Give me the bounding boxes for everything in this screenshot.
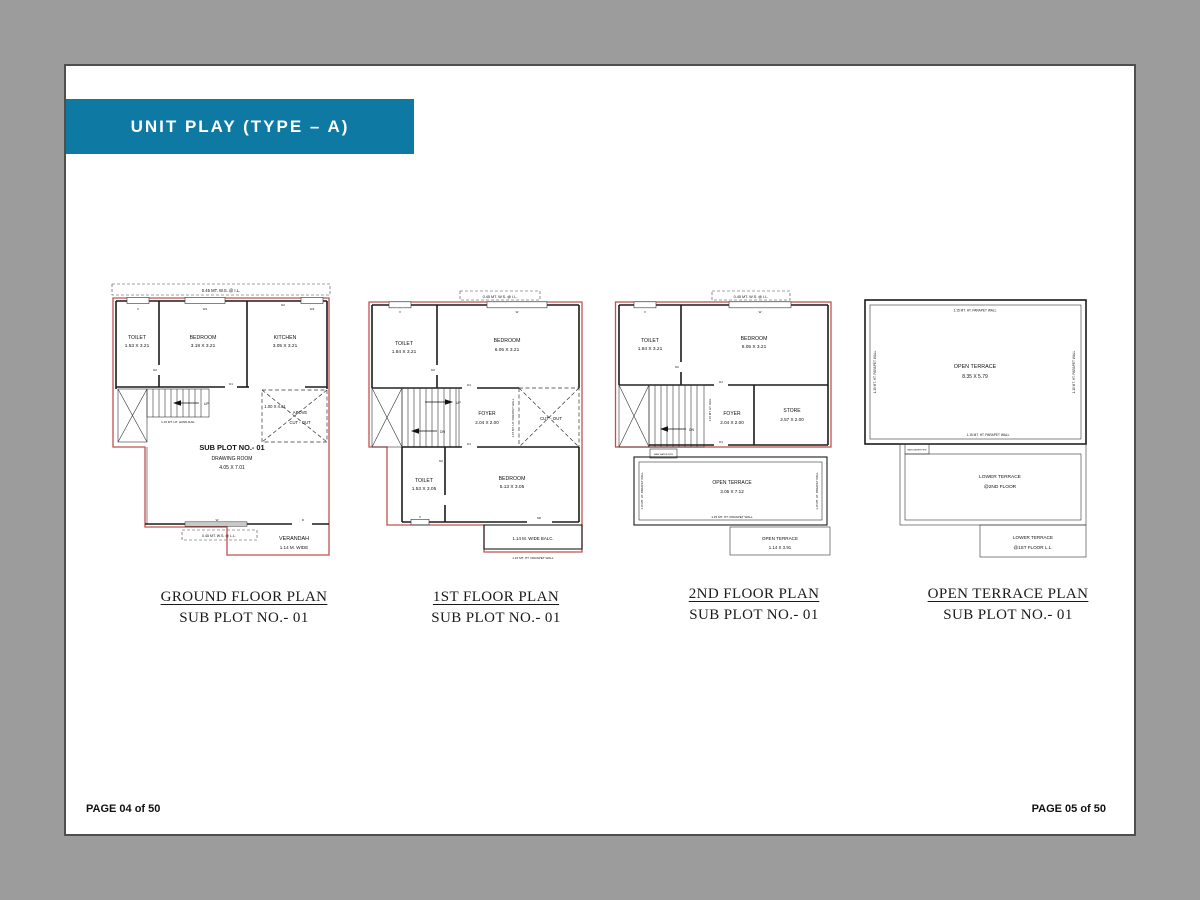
lower1-sub: @2ND FLOOR: [984, 484, 1017, 490]
subtitle-line: SUB PLOT NO.- 01: [888, 607, 1128, 624]
first-floor-drawing: 0.45 MT. W.S. @ I.L. V W D2 D1: [367, 290, 592, 562]
svg-text:3.05 X 3.21: 3.05 X 3.21: [273, 343, 298, 349]
lower-terrace-1st: LOWER TERRACE @1ST FLOOR L.L.: [980, 525, 1086, 557]
title-line: OPEN TERRACE PLAN: [888, 586, 1128, 603]
svg-text:BEDROOM: BEDROOM: [190, 335, 217, 341]
svg-text:1.53 X 3.21: 1.53 X 3.21: [125, 343, 150, 349]
parapet-bottom-label: 1.15 MT. HT. PARAPET WALL: [512, 556, 554, 560]
terrace2-label: OPEN TERRACE: [762, 536, 798, 541]
canvas: { "colors": { "canvas_bg": "#9c9c9c", "p…: [0, 0, 1200, 900]
svg-text:V: V: [137, 307, 139, 311]
staircase: UP DN: [372, 388, 461, 447]
door-window-tags: V W D2 D1 D1: [644, 310, 762, 444]
second-floor-plan: 0.45 MT. W.S. @ I.L. V W D2 D1: [614, 290, 844, 564]
lower-terrace-2nd: LOWER TERRACE @2ND FLOOR: [900, 444, 1086, 525]
second-floor-title: 2ND FLOOR PLAN SUB PLOT NO.- 01: [634, 586, 874, 624]
svg-text:D2: D2: [431, 368, 435, 372]
sill-label: 0.45 MT. W.S. @ I.L.: [202, 288, 240, 293]
parapet-bottom-label: 1.15 MT. HT. PARAPET WALL: [967, 433, 1010, 437]
svg-text:D2: D2: [153, 368, 157, 372]
parapet-right-label: 1.15 MT. HT. PARAPET WALL: [815, 472, 819, 510]
cutout-dim: 1.00 X 4.61: [264, 404, 286, 409]
cutout: CUT - OUT: [519, 388, 579, 447]
bottom-wall: [145, 522, 329, 527]
parapet-right-label: 1.15 MT. HT. PARAPET WALL: [1072, 350, 1076, 393]
room-labels-upper: TOILET 1.84 X 3.21 BEDROOM 6.05 X 3.21: [638, 336, 768, 352]
svg-text:TOILET: TOILET: [128, 335, 147, 341]
balcony: 1.14 M. WIDE BALC.: [484, 525, 582, 549]
svg-text:D: D: [302, 518, 305, 522]
document-page: UNIT PLAY (TYPE – A) 0.45 MT. W.S. @ I.L…: [64, 64, 1136, 836]
page-title: UNIT PLAY (TYPE – A): [131, 117, 350, 137]
drawing-room-labels: SUB PLOT NO.- 01 DRAWING ROOM 4.05 X 7.0…: [199, 443, 264, 471]
svg-text:W1: W1: [203, 307, 208, 311]
up-arrow: [425, 399, 453, 404]
ground-floor-title: GROUND FLOOR PLAN SUB PLOT NO.- 01: [124, 589, 364, 627]
svg-text:1.84 X 3.21: 1.84 X 3.21: [638, 346, 663, 352]
foyer-labels: FOYER 2.04 X 2.00: [475, 411, 499, 425]
title-line: 2ND FLOOR PLAN: [634, 586, 874, 603]
lower1-label: LOWER TERRACE: [979, 474, 1021, 480]
balcony-label: 1.14 M. WIDE BALC.: [512, 536, 553, 541]
sill-bottom-label: 0.45 MT. W.S. @ L.L.: [202, 534, 236, 538]
svg-text:FOYER: FOYER: [723, 411, 741, 417]
svg-text:RAIN WATER PIPE: RAIN WATER PIPE: [907, 449, 927, 452]
first-floor-title: 1ST FLOOR PLAN SUB PLOT NO.- 01: [376, 589, 616, 627]
svg-text:5.13 X 3.05: 5.13 X 3.05: [500, 484, 525, 490]
svg-text:D2: D2: [439, 459, 443, 463]
terrace-label: OPEN TERRACE: [712, 480, 752, 486]
dn-label: DN: [440, 430, 445, 434]
title-line: 1ST FLOOR PLAN: [376, 589, 616, 606]
svg-text:D1: D1: [467, 383, 471, 387]
svg-text:VERANDAH: VERANDAH: [279, 536, 309, 542]
svg-text:D1: D1: [719, 440, 723, 444]
terrace2-dim: 1.14 X 3.91: [769, 545, 792, 550]
terrace-labels: OPEN TERRACE 8.35 X 5.79: [954, 364, 997, 380]
terrace-dim: 3.05 X 7.12: [720, 489, 744, 494]
svg-text:D2: D2: [675, 365, 679, 369]
verandah-labels: VERANDAH 1.14 M. WIDE: [279, 536, 309, 550]
parapet-mid-label: 1.15 MT. HT. PARAPET WALL: [511, 398, 515, 437]
svg-text:FOYER: FOYER: [478, 411, 496, 417]
subtitle-line: SUB PLOT NO.- 01: [634, 607, 874, 624]
walls-lower: [402, 447, 579, 525]
svg-text:6.05 X 3.21: 6.05 X 3.21: [742, 344, 767, 350]
up-label: UP: [204, 402, 209, 406]
svg-text:6.05 X 3.21: 6.05 X 3.21: [495, 347, 520, 353]
open-terrace-mid: OPEN TERRACE 3.05 X 7.12 1.15 MT. HT. PA…: [634, 457, 827, 525]
lower2-sub: @1ST FLOOR L.L.: [1013, 545, 1052, 550]
svg-text:W: W: [759, 310, 762, 314]
foyer-labels: FOYER 2.04 X 2.00: [720, 411, 744, 425]
dn-label: DN: [689, 428, 694, 432]
subplot-label: SUB PLOT NO.- 01: [199, 443, 264, 452]
svg-text:D1: D1: [229, 382, 233, 386]
svg-text:W2: W2: [310, 307, 315, 311]
parapet-bottom-label: 1.15 MT. HT. PARAPET WALL: [711, 515, 753, 519]
svg-text:SD: SD: [537, 516, 542, 520]
svg-text:RAIN WATER PIPE: RAIN WATER PIPE: [654, 453, 674, 456]
rain-water-pipe: RAIN WATER PIPE: [905, 444, 929, 454]
cutout-label-2: CUT - OUT: [289, 420, 311, 425]
parapet-left-label: 1.15 MT. HT. PARAPET WALL: [873, 350, 877, 393]
walls-upper: [619, 305, 828, 385]
header-banner: UNIT PLAY (TYPE – A): [66, 99, 414, 154]
room-labels-lower: TOILET 1.53 X 3.05 BEDROOM 5.13 X 3.05: [412, 476, 526, 492]
staircase: DN: [619, 385, 704, 447]
svg-text:1.84 X 3.21: 1.84 X 3.21: [392, 349, 417, 355]
svg-text:8.35 X 5.79: 8.35 X 5.79: [962, 374, 988, 380]
svg-text:BEDROOM: BEDROOM: [494, 338, 521, 344]
open-terrace-title: OPEN TERRACE PLAN SUB PLOT NO.- 01: [888, 586, 1128, 624]
svg-text:TOILET: TOILET: [395, 341, 414, 347]
svg-text:BEDROOM: BEDROOM: [499, 476, 526, 482]
room-labels-upper: TOILET 1.84 X 3.21 BEDROOM 6.05 X 3.21: [392, 338, 521, 355]
svg-text:BEDROOM: BEDROOM: [741, 336, 768, 342]
svg-text:V: V: [644, 310, 646, 314]
open-terrace-low: OPEN TERRACE 1.14 X 3.91: [730, 527, 830, 555]
ground-floor-drawing: 0.45 MT. W.S. @ I.L.: [97, 277, 357, 572]
svg-text:V: V: [399, 310, 401, 314]
rail-label: 1.15 MT. HT. RAIL: [708, 398, 712, 421]
svg-text:W: W: [516, 310, 519, 314]
svg-text:4.05 X 7.01: 4.05 X 7.01: [219, 465, 245, 471]
svg-text:3.19 X 3.21: 3.19 X 3.21: [191, 343, 216, 349]
room-labels: TOILET 1.53 X 3.21 BEDROOM 3.19 X 3.21 K…: [125, 335, 298, 349]
svg-text:W: W: [216, 518, 219, 522]
staircase: UP 1.15 MT. HT. HAND RAIL: [118, 389, 209, 442]
page-number-right: PAGE 05 of 50: [1032, 803, 1106, 815]
store-label: STORE: [783, 408, 801, 414]
store-dim: 2.57 X 2.00: [780, 417, 804, 422]
subtitle-line: SUB PLOT NO.- 01: [376, 610, 616, 627]
cutout-label-1: ABOVE: [293, 410, 308, 415]
plot-outline: [616, 302, 832, 447]
svg-text:1.14 M. WIDE: 1.14 M. WIDE: [280, 545, 309, 550]
second-floor-drawing: 0.45 MT. W.S. @ I.L. V W D2 D1: [614, 290, 844, 564]
sill-label: 0.45 MT. W.S. @ I.L.: [483, 295, 518, 299]
subtitle-line: SUB PLOT NO.- 01: [124, 610, 364, 627]
svg-text:V: V: [419, 515, 421, 519]
svg-text:2.04 X 2.00: 2.04 X 2.00: [720, 420, 744, 425]
title-line: GROUND FLOOR PLAN: [124, 589, 364, 606]
first-floor-plan: 0.45 MT. W.S. @ I.L. V W D2 D1: [367, 290, 592, 562]
svg-text:2.04 X 2.00: 2.04 X 2.00: [475, 420, 499, 425]
cutout: 1.00 X 4.61 ABOVE CUT - OUT: [262, 390, 327, 442]
cutout-label: CUT - OUT: [540, 416, 562, 421]
parapet-labels: 1.15 MT. HT. PARAPET WALL 1.15 MT. HT. P…: [873, 309, 1076, 438]
handrail-label: 1.15 MT. HT. HAND RAIL: [161, 420, 195, 424]
svg-text:OPEN TERRACE: OPEN TERRACE: [954, 364, 997, 370]
lower2-label: LOWER TERRACE: [1013, 535, 1053, 540]
up-label: UP: [456, 401, 461, 405]
sill-label: 0.45 MT. W.S. @ I.L.: [734, 295, 769, 299]
svg-text:D2: D2: [281, 303, 285, 307]
parapet-left-label: 1.15 MT. HT. PARAPET WALL: [640, 472, 644, 510]
ground-floor-plan: 0.45 MT. W.S. @ I.L.: [97, 277, 357, 572]
parapet-top-label: 1.15 MT. HT. PARAPET WALL: [954, 309, 997, 313]
svg-text:D1: D1: [467, 442, 471, 446]
svg-text:KITCHEN: KITCHEN: [274, 335, 297, 341]
open-terrace-drawing: 1.15 MT. HT. PARAPET WALL 1.15 MT. HT. P…: [860, 292, 1087, 560]
svg-text:D1: D1: [719, 380, 723, 384]
svg-text:1.53 X 3.05: 1.53 X 3.05: [412, 486, 437, 492]
svg-text:DRAWING ROOM: DRAWING ROOM: [212, 456, 253, 462]
plot-outline: [369, 302, 582, 552]
svg-text:TOILET: TOILET: [415, 478, 434, 484]
terrace-walls: [865, 300, 1086, 444]
svg-text:TOILET: TOILET: [641, 338, 660, 344]
page-number-left: PAGE 04 of 50: [86, 803, 160, 815]
open-terrace-plan: 1.15 MT. HT. PARAPET WALL 1.15 MT. HT. P…: [860, 292, 1087, 560]
dn-arrow: [411, 428, 437, 433]
